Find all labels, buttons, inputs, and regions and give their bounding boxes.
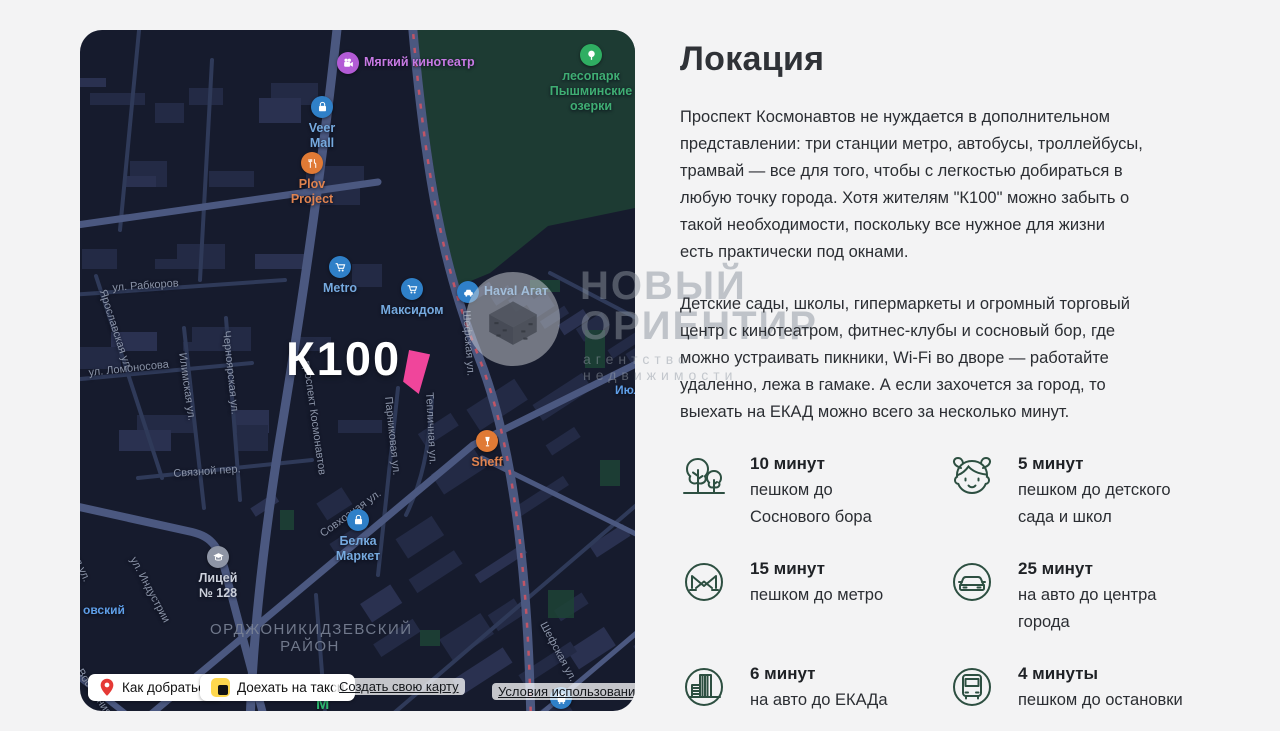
- district-label: ОРДЖОНИКИДЗЕВСКИЙ РАЙОН: [210, 621, 410, 655]
- features-grid: 10 минут пешком до Соснового бора 5 мину…: [680, 451, 1210, 714]
- shopping-bag-icon: [347, 509, 369, 531]
- cinema-icon: [337, 52, 359, 74]
- feature-text: пешком до остановки: [1018, 687, 1183, 714]
- paragraph: Детские сады, школы, гипермаркеты и огро…: [680, 291, 1190, 426]
- poi-label: Максидом: [381, 303, 444, 318]
- poi-label: лесопарк Пышминские озерки: [550, 69, 632, 114]
- taxi-button-label: Доехать на такси: [237, 680, 344, 695]
- feature-pine-forest: 10 минут пешком до Соснового бора: [680, 451, 948, 530]
- buildings-icon: [680, 663, 728, 711]
- restaurant-icon: [301, 152, 323, 174]
- location-section: Локация Проспект Космонавтов не нуждаетс…: [680, 30, 1210, 714]
- girl-icon: [948, 453, 996, 501]
- feature-ekad: 6 минут на авто до ЕКАДа: [680, 661, 948, 714]
- feature-title: 4 минуты: [1018, 661, 1183, 687]
- project-logo-text: К100: [286, 336, 401, 382]
- feature-text: пешком до метро: [750, 582, 883, 609]
- poi-label: Plov Project: [291, 177, 333, 207]
- feature-text: пешком до детского сада и школ: [1018, 477, 1171, 530]
- feature-title: 5 минут: [1018, 451, 1171, 477]
- trees-icon: [680, 453, 728, 501]
- poi-sheff[interactable]: Sheff: [476, 430, 498, 452]
- car-icon: [948, 558, 996, 606]
- tree-icon: [580, 44, 602, 66]
- feature-title: 15 минут: [750, 556, 883, 582]
- terms-of-use-link[interactable]: Условия использования: [492, 683, 635, 700]
- school-icon: [207, 546, 229, 568]
- feature-metro: 15 минут пешком до метро: [680, 556, 948, 635]
- poi-label: Белка Маркет: [336, 534, 380, 564]
- project-logo: К100: [286, 336, 430, 394]
- poi-maksidom[interactable]: Максидом: [401, 278, 423, 300]
- street-label: Июльская: [615, 383, 635, 397]
- poi-lyceum-128[interactable]: Лицей № 128: [207, 546, 229, 568]
- map-pin-icon: [99, 678, 115, 697]
- wine-glass-icon: [476, 430, 498, 452]
- feature-city-center: 25 минут на авто до центра города: [948, 556, 1210, 635]
- locality-label: овский: [83, 603, 125, 617]
- poi-label: Metro: [323, 281, 357, 296]
- page-title: Локация: [680, 40, 1210, 79]
- taxi-app-icon: [211, 678, 230, 697]
- poi-metro-store[interactable]: Metro: [329, 256, 351, 278]
- poi-label: Sheff: [471, 455, 502, 470]
- feature-text: пешком до Соснового бора: [750, 477, 872, 530]
- car-icon: [457, 281, 479, 303]
- location-map[interactable]: ул. Рабкоров Ярославская ул. ул. Ломонос…: [80, 30, 635, 711]
- shopping-bag-icon: [311, 96, 333, 118]
- metro-icon: [680, 558, 728, 606]
- cart-icon: [329, 256, 351, 278]
- feature-title: 25 минут: [1018, 556, 1156, 582]
- feature-text: на авто до центра города: [1018, 582, 1156, 635]
- feature-kindergarten: 5 минут пешком до детского сада и школ: [948, 451, 1210, 530]
- poi-forest-park[interactable]: лесопарк Пышминские озерки: [580, 44, 602, 66]
- poi-label: Veer Mall: [309, 121, 335, 151]
- pink-comma-icon: [403, 350, 430, 394]
- create-map-link[interactable]: Создать свою карту: [333, 678, 465, 695]
- poi-veer-mall[interactable]: Veer Mall: [311, 96, 333, 118]
- feature-bus-stop: 4 минуты пешком до остановки: [948, 661, 1210, 714]
- poi-label: Лицей № 128: [199, 571, 238, 601]
- feature-text: на авто до ЕКАДа: [750, 687, 888, 714]
- poi-cinema[interactable]: Мягкий кинотеатр: [337, 52, 359, 74]
- feature-title: 10 минут: [750, 451, 872, 477]
- bus-icon: [948, 663, 996, 711]
- poi-plov-project[interactable]: Plov Project: [301, 152, 323, 174]
- poi-label: Haval Агат: [484, 284, 548, 299]
- feature-title: 6 минут: [750, 661, 888, 687]
- poi-belka-market[interactable]: Белка Маркет: [347, 509, 369, 531]
- poi-label: Мягкий кинотеатр: [364, 55, 475, 70]
- cart-icon: [401, 278, 423, 300]
- paragraph: Проспект Космонавтов не нуждается в допо…: [680, 104, 1190, 266]
- poi-haval-agat[interactable]: Haval Агат: [457, 281, 479, 303]
- route-button-label: Как добраться: [122, 680, 212, 695]
